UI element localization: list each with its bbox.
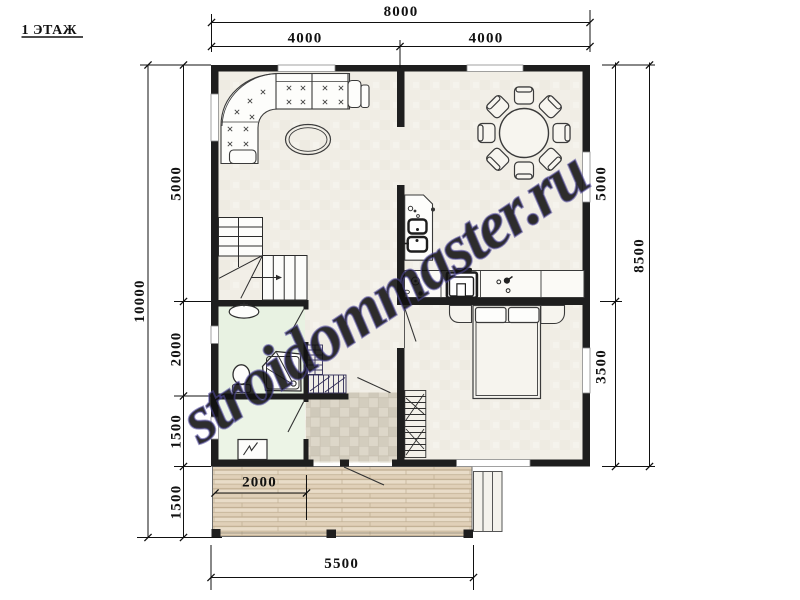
svg-text:4000: 4000 (288, 31, 323, 47)
svg-text:5500: 5500 (324, 556, 359, 572)
svg-text:3500: 3500 (594, 349, 610, 384)
svg-text:1500: 1500 (169, 485, 185, 520)
svg-text:8500: 8500 (632, 238, 648, 273)
svg-text:2000: 2000 (169, 332, 185, 367)
svg-text:1 ЭТАЖ: 1 ЭТАЖ (22, 23, 78, 38)
svg-text:10000: 10000 (132, 279, 148, 323)
svg-text:4000: 4000 (469, 31, 504, 47)
svg-text:2000: 2000 (242, 475, 277, 491)
svg-text:8000: 8000 (384, 4, 419, 20)
svg-text:5000: 5000 (169, 166, 185, 201)
